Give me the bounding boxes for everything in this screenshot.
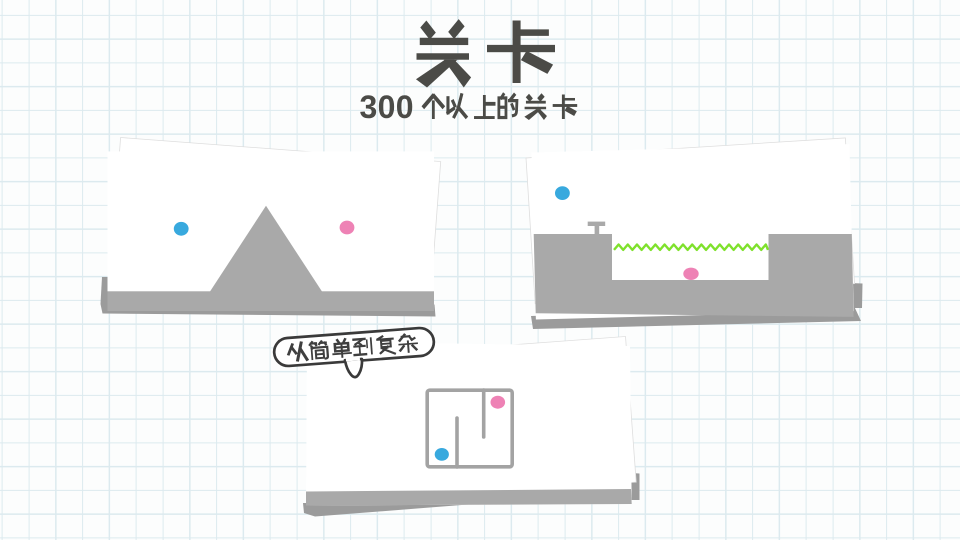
svg-text:300: 300 <box>360 89 414 125</box>
